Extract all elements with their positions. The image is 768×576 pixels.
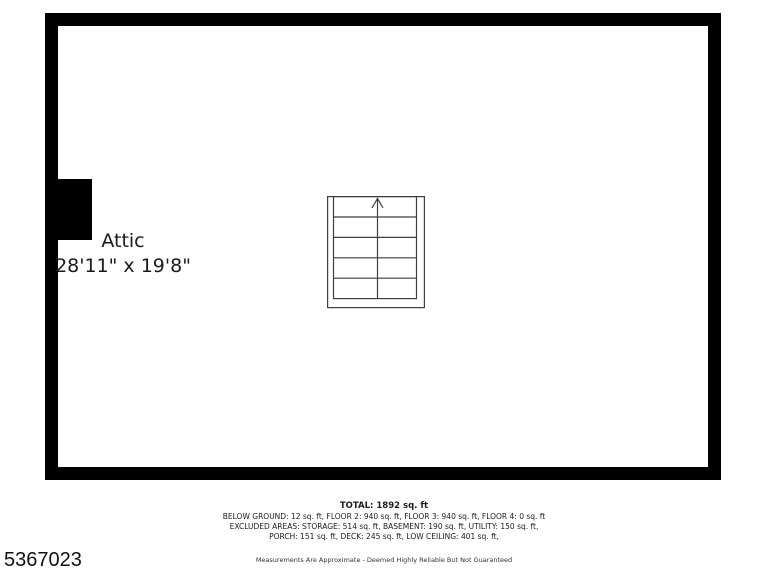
floor-plan-canvas: Attic 28'11" x 19'8" TOTAL: 1892 sq. ft …	[0, 0, 768, 576]
area-detail-line: EXCLUDED AREAS: STORAGE: 514 sq. ft, BAS…	[0, 522, 768, 532]
stairwell-outline	[328, 197, 425, 308]
area-detail-line: BELOW GROUND: 12 sq. ft, FLOOR 2: 940 sq…	[0, 512, 768, 522]
room-label: Attic 28'11" x 19'8"	[23, 229, 223, 279]
area-detail-line: PORCH: 151 sq. ft, DECK: 245 sq. ft, LOW…	[0, 532, 768, 542]
room-dimensions: 28'11" x 19'8"	[23, 254, 223, 279]
area-summary: TOTAL: 1892 sq. ft BELOW GROUND: 12 sq. …	[0, 501, 768, 542]
mls-number: 5367023	[4, 549, 82, 572]
room-name: Attic	[23, 229, 223, 254]
total-area-line: TOTAL: 1892 sq. ft	[0, 501, 768, 512]
stair-tread-area	[334, 197, 417, 299]
staircase-symbol	[327, 196, 425, 309]
disclaimer-text: Measurements Are Approximate - Deemed Hi…	[0, 556, 768, 564]
